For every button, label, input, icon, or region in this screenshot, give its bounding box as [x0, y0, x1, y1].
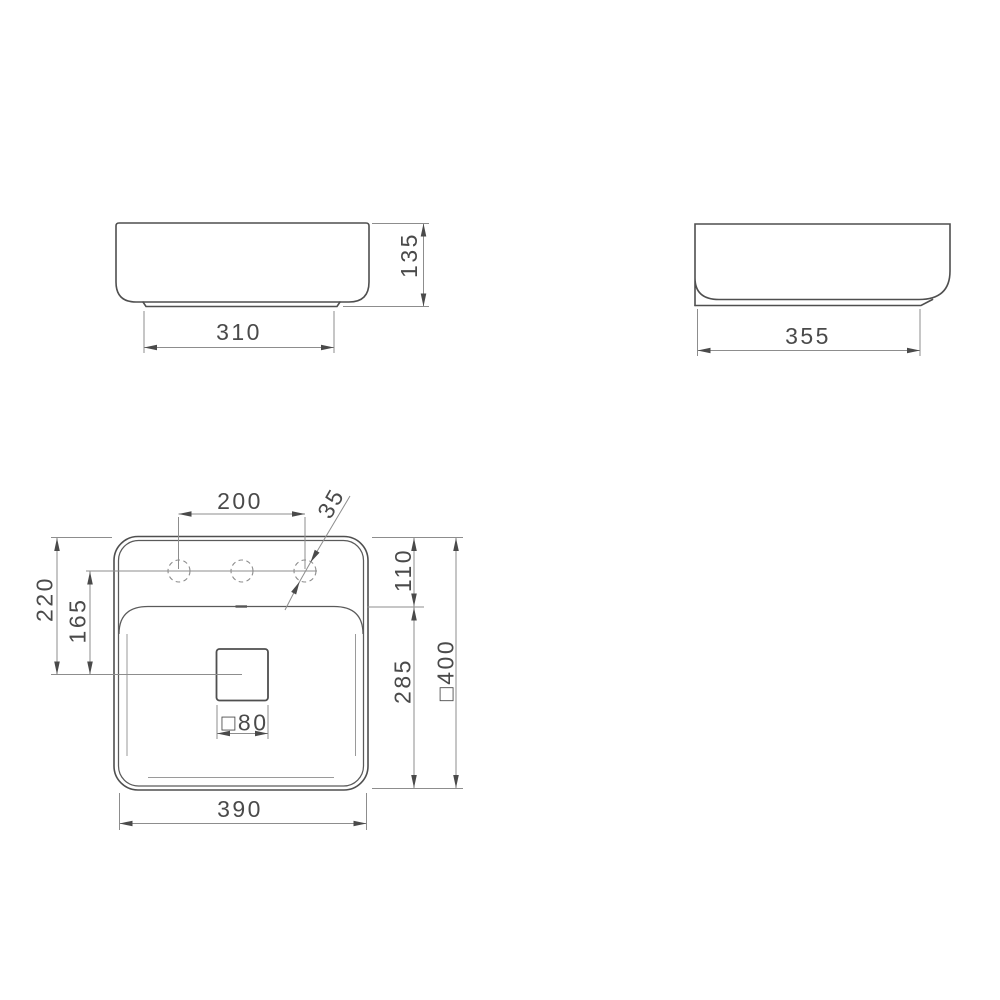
dim-rim-to-bowl: 110: [367, 538, 463, 608]
plan-outer-rim: [114, 537, 368, 791]
dim-drain-square-label: □80: [222, 710, 269, 736]
basin-dimension-drawing: 135 310 355: [0, 0, 1000, 1000]
dim-rim-to-bowl-label: 110: [390, 548, 416, 592]
dim-front-height: 135: [343, 224, 429, 307]
dim-front-base-width-label: 310: [216, 319, 262, 345]
technical-drawing-canvas: 135 310 355: [0, 0, 1000, 1000]
dim-rim-to-drain-label: 220: [32, 576, 58, 622]
dim-holes-to-drain: 165: [65, 572, 91, 675]
front-view: 135 310: [116, 223, 429, 353]
dim-bowl-depth-label: 285: [390, 658, 416, 704]
dim-side-base-depth-label: 355: [785, 323, 831, 349]
front-body-outline: [116, 223, 369, 302]
plan-view: 200 35 220 165 110: [32, 483, 464, 830]
dim-plan-base-width-label: 390: [217, 796, 263, 822]
dim-side-base-depth: 355: [698, 309, 921, 356]
dim-overall-square-label: □400: [433, 639, 459, 701]
drain-square-value: 80: [238, 710, 269, 736]
dim-overall-square: □400: [433, 538, 459, 788]
square-symbol: □: [222, 710, 238, 736]
dim-tap-hole-spacing: 200: [179, 488, 306, 569]
side-body-outline: [695, 224, 950, 306]
leader-line: [285, 582, 300, 610]
dim-plan-base-width: 390: [120, 793, 367, 830]
dim-holes-to-drain-label: 165: [65, 598, 91, 644]
bowl-top-edge: [119, 607, 363, 635]
plan-inner-rim: [119, 541, 364, 787]
overall-square-value: 400: [433, 639, 459, 685]
square-symbol: □: [433, 685, 459, 701]
side-foot-outline: [695, 300, 933, 306]
dim-tap-hole-diameter: 35: [285, 483, 350, 610]
dim-tap-hole-diameter-label: 35: [312, 483, 350, 522]
dim-tap-hole-spacing-label: 200: [217, 488, 263, 514]
dim-drain-square: □80: [217, 705, 269, 739]
dim-front-base-width: 310: [144, 311, 334, 353]
side-view: 355: [695, 224, 950, 356]
dim-front-height-label: 135: [396, 232, 422, 278]
